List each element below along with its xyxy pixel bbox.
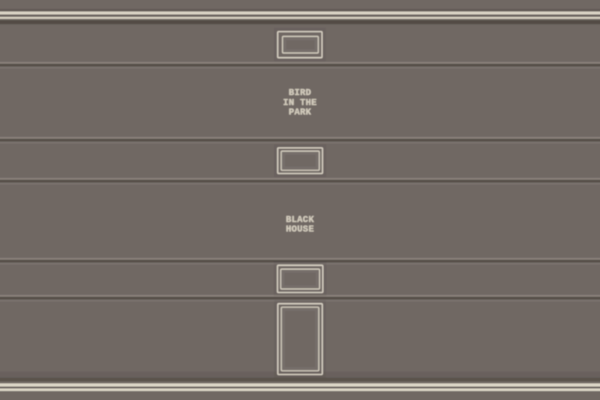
- svg-text:IN THE: IN THE: [283, 98, 317, 108]
- svg-text:HOUSE: HOUSE: [286, 225, 315, 235]
- svg-text:BLACK: BLACK: [286, 215, 315, 225]
- svg-text:BIRD: BIRD: [289, 88, 312, 98]
- svg-text:PARK: PARK: [289, 108, 312, 118]
